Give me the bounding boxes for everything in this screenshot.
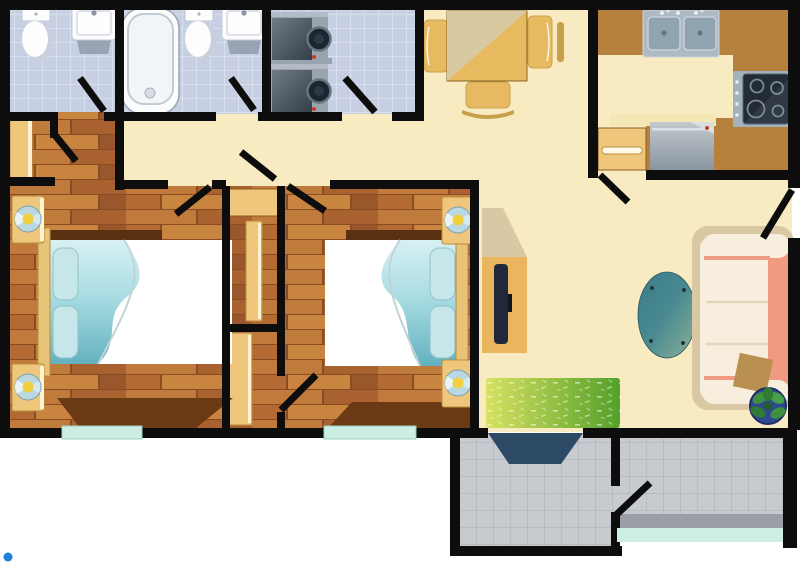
window-balcony-glass xyxy=(617,528,783,542)
laundry-room xyxy=(266,12,332,114)
kitchen-dishwasher xyxy=(650,122,714,172)
flat-tv xyxy=(494,264,508,344)
wall-alcove-bottom xyxy=(0,177,55,186)
wall-closet-mid xyxy=(222,324,285,332)
wall-right-lower xyxy=(788,238,800,430)
wall-closet-right-upper xyxy=(277,186,285,332)
wall-balcony-right xyxy=(783,428,797,548)
stacked-dryer xyxy=(270,64,331,114)
wall-bedroom2-right xyxy=(470,180,479,428)
headboard xyxy=(38,228,50,376)
wall-closet-left xyxy=(222,186,230,428)
bathtub xyxy=(122,8,179,114)
stacked-washer xyxy=(270,12,331,62)
wall-hall-bottom-a xyxy=(122,180,168,189)
closet-sliding-panel-top xyxy=(246,221,262,321)
balcony-tile-floor xyxy=(615,434,787,528)
wall-bathroom2-right xyxy=(262,0,271,121)
nightstand-lamp-top xyxy=(442,197,474,244)
wall-kitchen-left xyxy=(588,0,598,178)
kitchen-double-sink xyxy=(643,10,719,57)
floor-plan-canvas xyxy=(0,0,800,564)
pillow xyxy=(430,306,455,358)
balcony-edge-strip xyxy=(617,514,783,528)
pedestal-sink xyxy=(222,6,266,54)
closet-sliding-panel-bottom xyxy=(229,333,252,425)
pillow xyxy=(53,248,78,300)
hallway-wardrobe xyxy=(10,119,32,179)
wall-right-upper xyxy=(788,0,800,188)
window-bedroom1 xyxy=(62,426,142,439)
floor-plan-page xyxy=(0,0,800,564)
sofa-piping-top xyxy=(704,256,770,260)
nightstand-lamp-bottom xyxy=(442,360,474,407)
nightstand-lamp-bottom xyxy=(12,364,44,411)
wall-kitchen-bottom xyxy=(646,170,788,180)
dining-table xyxy=(447,11,527,81)
tv-stand xyxy=(508,294,512,312)
sofa-armrest-top xyxy=(702,234,790,258)
window-bedroom2 xyxy=(324,426,416,439)
wall-bath-bottom-a xyxy=(0,112,57,121)
pedestal-sink xyxy=(72,6,116,54)
kitchen-drawer-cabinet xyxy=(598,128,646,170)
oval-coffee-table xyxy=(638,272,696,358)
wall-vestibule-left xyxy=(450,428,460,556)
pillow xyxy=(430,248,455,300)
wall-bedroom2-top xyxy=(330,180,474,189)
wall-left xyxy=(0,0,10,437)
green-grass-rug xyxy=(486,378,620,428)
wall-laundry-right xyxy=(415,0,424,121)
nightstand-lamp-top xyxy=(12,196,44,243)
wall-closet-right-stub xyxy=(277,412,285,428)
wall-vestibule-bottom xyxy=(450,546,622,556)
sofa xyxy=(692,226,794,410)
toilet xyxy=(22,8,53,59)
wall-bathroom1-right xyxy=(115,0,124,190)
kitchen-cooktop xyxy=(733,71,791,127)
bathroom-tile-floor xyxy=(8,8,417,114)
cursor-dot xyxy=(4,553,13,562)
toilet xyxy=(185,8,216,59)
wall-closet-right-lower xyxy=(277,332,285,376)
pillow xyxy=(53,306,78,358)
closet-shelf xyxy=(227,189,278,216)
sofa-backrest xyxy=(768,246,788,392)
dining-chair-right xyxy=(528,16,564,68)
wall-vestibule-balcony-upper xyxy=(611,428,620,486)
headboard xyxy=(456,228,468,376)
